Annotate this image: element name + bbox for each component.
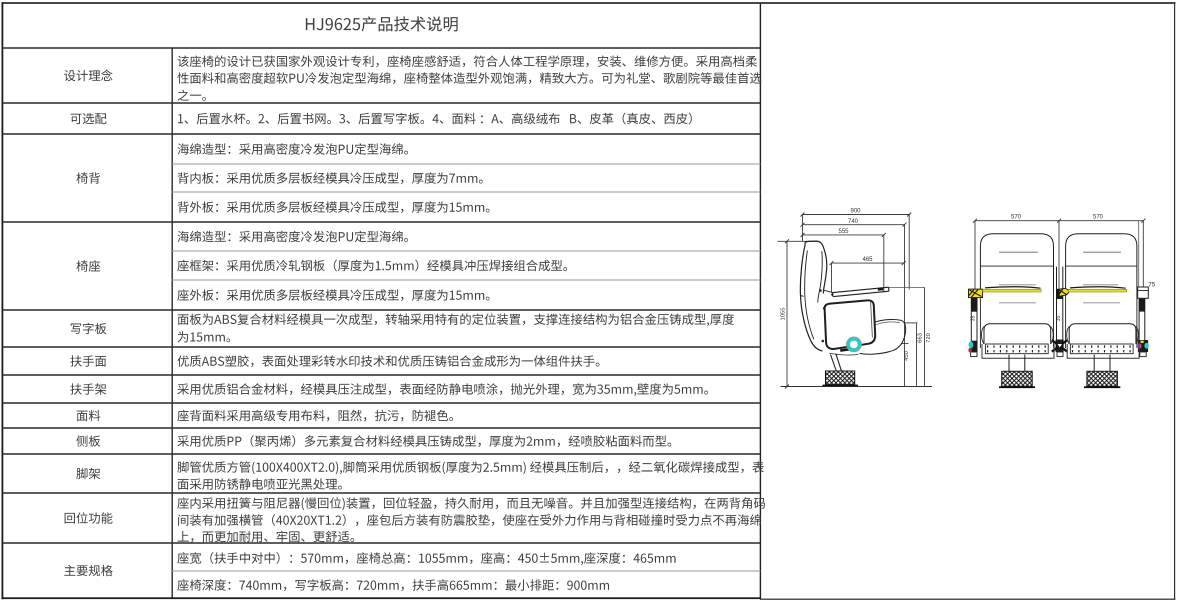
svg-text:35: 35 bbox=[1056, 316, 1062, 322]
svg-text:740: 740 bbox=[848, 219, 859, 225]
svg-text:1055: 1055 bbox=[780, 308, 786, 321]
svg-text:900: 900 bbox=[850, 209, 861, 215]
svg-text:450: 450 bbox=[904, 351, 910, 361]
svg-text:570: 570 bbox=[1011, 215, 1022, 221]
svg-text:465: 465 bbox=[862, 257, 873, 263]
svg-text:35: 35 bbox=[970, 316, 976, 322]
svg-text:555: 555 bbox=[838, 229, 849, 235]
svg-text:663: 663 bbox=[918, 333, 924, 343]
svg-text:75: 75 bbox=[1148, 282, 1156, 289]
svg-text:720: 720 bbox=[926, 333, 932, 343]
svg-text:570: 570 bbox=[1093, 215, 1104, 221]
